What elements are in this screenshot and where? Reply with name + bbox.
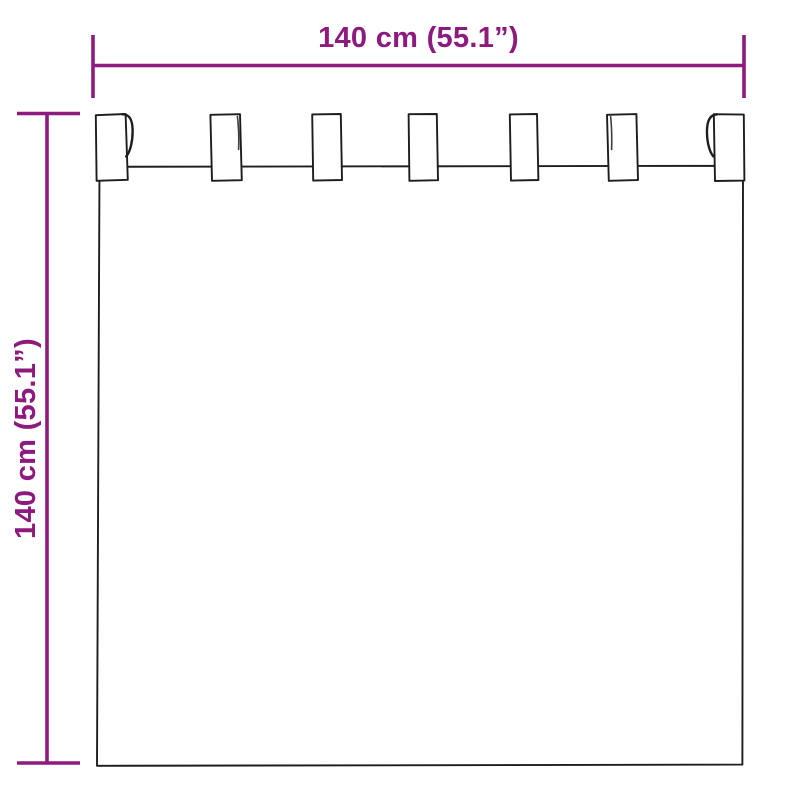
width-dimension-label: 140 cm (55.1”) [93, 22, 744, 55]
height-dimension-label-wrap: 140 cm (55.1”) [0, 114, 52, 763]
diagram-canvas [0, 0, 800, 800]
curtain-tab-5 [510, 114, 539, 181]
curtain-dimension-diagram: 140 cm (55.1”) 140 cm (55.1”) [0, 0, 800, 800]
curtain-drawing [96, 114, 745, 766]
curtain-tab-4 [409, 114, 438, 181]
curtain-tab-1 [96, 114, 128, 181]
curtain-tab-3 [312, 114, 342, 181]
curtain-tab-2 [210, 114, 241, 181]
curtain-panel [97, 166, 743, 766]
curtain-tab-7 [714, 114, 745, 181]
height-dimension-label: 140 cm (55.1”) [10, 338, 43, 539]
